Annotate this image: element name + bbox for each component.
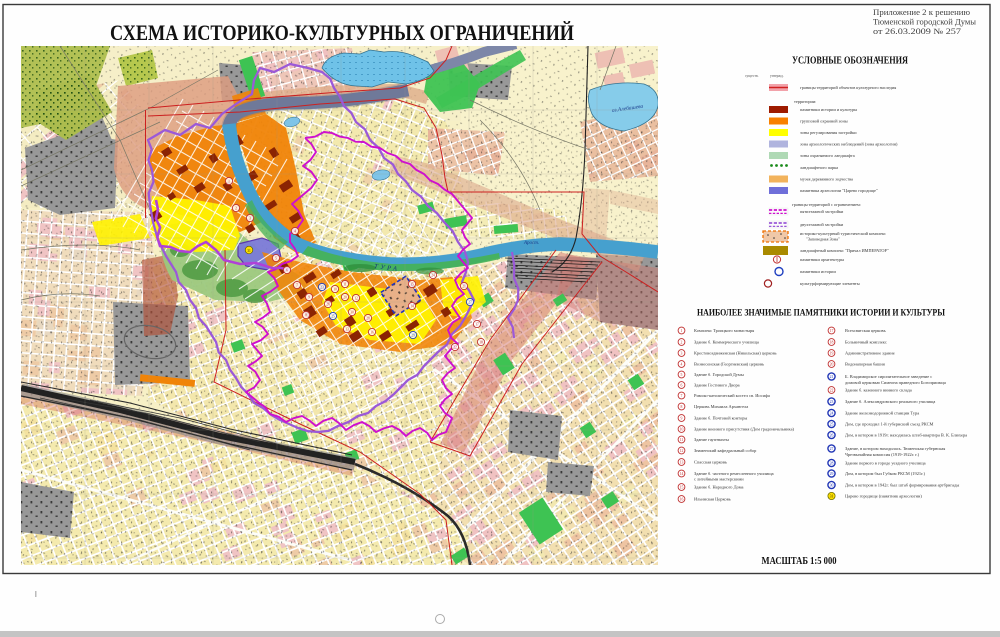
svg-text:7: 7 — [681, 394, 683, 398]
svg-text:11: 11 — [680, 438, 684, 442]
svg-text:3: 3 — [681, 352, 683, 356]
svg-text:существ.: существ. — [745, 74, 759, 78]
svg-text:1: 1 — [228, 179, 230, 183]
svg-text:30: 30 — [830, 484, 834, 488]
svg-text:9: 9 — [308, 295, 310, 299]
svg-text:12: 12 — [354, 296, 358, 300]
svg-text:Больничный комплекс: Больничный комплекс — [845, 340, 887, 345]
svg-text:26: 26 — [830, 434, 834, 438]
svg-text:31: 31 — [830, 495, 834, 499]
svg-text:ландшафтный комплекс "Причал И: ландшафтный комплекс "Причал ИМПЕРАТОР" — [800, 248, 889, 253]
svg-text:Здание Гостиного Двора: Здание Гостиного Двора — [694, 383, 740, 388]
svg-text:Здание б. казенного винного ск: Здание б. казенного винного склада — [845, 388, 912, 393]
svg-text:15: 15 — [410, 282, 414, 286]
svg-text:28: 28 — [366, 316, 370, 320]
svg-text:3: 3 — [249, 216, 251, 220]
svg-text:30: 30 — [350, 310, 354, 314]
svg-text:Римско-католический костел св.: Римско-католический костел св. Иосифа — [694, 393, 770, 398]
svg-text:"Заповедная Зона": "Заповедная Зона" — [806, 237, 840, 242]
svg-text:двухэтажной застройки: двухэтажной застройки — [800, 222, 844, 227]
svg-text:14: 14 — [410, 304, 414, 308]
svg-text:памятники архитектуры: памятники архитектуры — [800, 257, 844, 262]
svg-text:границы территорий объектов ку: границы территорий объектов культурного … — [800, 85, 896, 90]
svg-text:историко-культурный туристичес: историко-культурный туристический компле… — [800, 231, 886, 236]
svg-text:15: 15 — [680, 486, 684, 490]
svg-text:домовой церковью Симеона праве: домовой церковью Симеона праведного Бого… — [845, 380, 946, 385]
svg-text:4: 4 — [294, 229, 296, 233]
svg-text:Здание б. Народного Дома: Здание б. Народного Дома — [694, 485, 743, 490]
svg-text:23: 23 — [830, 400, 834, 404]
svg-text:7: 7 — [296, 283, 298, 287]
svg-text:10: 10 — [333, 287, 337, 291]
svg-text:25: 25 — [830, 423, 834, 427]
svg-text:Ильинская Церковь: Ильинская Церковь — [694, 497, 731, 502]
svg-text:20: 20 — [830, 363, 834, 367]
svg-text:Здание б. Коммерческого училищ: Здание б. Коммерческого училища — [694, 340, 759, 345]
svg-text:11: 11 — [343, 282, 347, 286]
svg-text:Здание первого в городе уездно: Здание первого в городе уездного училища — [845, 461, 926, 466]
svg-text:13: 13 — [345, 327, 349, 331]
svg-text:6: 6 — [681, 384, 683, 388]
svg-text:Здание б. Почтовой конторы: Здание б. Почтовой конторы — [694, 416, 747, 421]
svg-text:22: 22 — [830, 389, 834, 393]
svg-text:границы территорий с ограничен: границы территорий с ограничением: — [792, 202, 861, 207]
svg-text:Комплекс Троицкого монастыря: Комплекс Троицкого монастыря — [694, 328, 754, 333]
svg-text:8: 8 — [681, 405, 683, 409]
svg-text:зоны регулирования застройки: зоны регулирования застройки — [800, 130, 857, 135]
svg-text:от 26.03.2009 № 257: от 26.03.2009 № 257 — [873, 27, 961, 36]
svg-text:ландшафтного парка: ландшафтного парка — [800, 165, 838, 170]
svg-text:культурформирующие элементы: культурформирующие элементы — [800, 281, 860, 286]
svg-text:10: 10 — [680, 428, 684, 432]
svg-text:21: 21 — [462, 284, 466, 288]
svg-text:5: 5 — [681, 373, 683, 377]
svg-text:29: 29 — [411, 333, 415, 337]
svg-text:Знаменский кафедральный собор: Знаменский кафедральный собор — [694, 448, 757, 453]
svg-text:18: 18 — [479, 340, 483, 344]
svg-text:12: 12 — [680, 449, 684, 453]
svg-text:Царево городище (памятник архе: Царево городище (памятник археологии) — [845, 494, 922, 499]
svg-text:Здание б. Александровского реа: Здание б. Александровского реального учи… — [845, 399, 935, 404]
svg-text:с литейными мастерскими: с литейными мастерскими — [694, 477, 744, 482]
svg-text:14: 14 — [680, 472, 684, 476]
svg-text:МАСШТАБ 1:5 000: МАСШТАБ 1:5 000 — [762, 556, 837, 567]
svg-text:6: 6 — [286, 268, 288, 272]
svg-text:29: 29 — [830, 472, 834, 476]
svg-text:13: 13 — [680, 461, 684, 465]
svg-text:Приложение 2 к решению: Приложение 2 к решению — [873, 8, 970, 17]
svg-text:памятники истории: памятники истории — [800, 269, 836, 274]
svg-text:Водонапорная башня: Водонапорная башня — [845, 362, 885, 367]
svg-text:25: 25 — [331, 314, 335, 318]
svg-text:16: 16 — [680, 498, 684, 502]
svg-text:Здание б. частного ремесленног: Здание б. частного ремесленного училища — [694, 471, 774, 476]
svg-text:2: 2 — [681, 341, 683, 345]
svg-text:Б. Владимирское сиропитательно: Б. Владимирское сиропитательное заведени… — [845, 374, 932, 379]
svg-text:утвержд.: утвержд. — [770, 74, 784, 78]
svg-text:2: 2 — [235, 206, 237, 210]
svg-text:20: 20 — [343, 295, 347, 299]
svg-text:19: 19 — [830, 352, 834, 356]
svg-text:22: 22 — [453, 345, 457, 349]
svg-text:26: 26 — [326, 302, 330, 306]
svg-text:территории:: территории: — [794, 99, 816, 104]
svg-text:зоны охраняемого ландшафта: зоны охраняемого ландшафта — [800, 153, 855, 158]
svg-text:памятники истории и культуры: памятники истории и культуры — [800, 107, 857, 112]
svg-text:28: 28 — [830, 462, 834, 466]
svg-text:Спасская церковь: Спасская церковь — [694, 460, 727, 465]
svg-text:памятника археологии "Царево г: памятника археологии "Царево городище" — [800, 188, 878, 193]
svg-text:Чрезвычайная комиссия (1919-19: Чрезвычайная комиссия (1919-1922г. г.) — [845, 452, 920, 457]
svg-text:Административное здание: Административное здание — [845, 351, 895, 356]
svg-text:зона археологических наблюдени: зона археологических наблюдений (зона ар… — [800, 142, 898, 147]
svg-text:Здание гауптвахты: Здание гауптвахты — [694, 437, 729, 442]
svg-text:Всехсвятская церковь: Всехсвятская церковь — [845, 328, 886, 333]
svg-text:Здание военного присутствия (: Здание военного присутствия (Дом градона… — [694, 427, 795, 432]
svg-text:5: 5 — [275, 256, 277, 260]
svg-text:Здание железнодорожной станции: Здание железнодорожной станции Тура — [845, 411, 919, 416]
svg-text:8: 8 — [305, 313, 307, 317]
svg-text:НАИБОЛЕЕ ЗНАЧИМЫЕ ПАМЯТНИКИ ИС: НАИБОЛЕЕ ЗНАЧИМЫЕ ПАМЯТНИКИ ИСТОРИИ И КУ… — [697, 309, 946, 319]
svg-text:пятиэтажной застройки: пятиэтажной застройки — [800, 209, 844, 214]
svg-text:1: 1 — [681, 329, 683, 333]
svg-text:17: 17 — [475, 322, 479, 326]
svg-text:31: 31 — [247, 249, 251, 253]
svg-text:СХЕМА ИСТОРИКО-КУЛЬТУРНЫХ ОГРА: СХЕМА ИСТОРИКО-КУЛЬТУРНЫХ ОГРАНИЧЕНИЙ — [110, 20, 574, 45]
svg-text:23: 23 — [320, 285, 324, 289]
svg-text:Тюменской городской Думы: Тюменской городской Думы — [873, 18, 977, 27]
svg-text:24: 24 — [431, 273, 435, 277]
svg-text:4: 4 — [681, 363, 683, 367]
svg-text:групповой охранной зоны: групповой охранной зоны — [800, 119, 848, 124]
svg-text:Крестовоздвиженская (Никольска: Крестовоздвиженская (Никольская) церковь — [694, 351, 777, 356]
svg-text:17: 17 — [830, 329, 834, 333]
svg-text:21: 21 — [830, 375, 834, 379]
svg-text:Здание б. Городской Думы: Здание б. Городской Думы — [694, 372, 744, 377]
svg-text:Арост.: Арост. — [523, 241, 539, 246]
svg-text:9: 9 — [681, 417, 683, 421]
svg-text:УСЛОВНЫЕ ОБОЗНАЧЕНИЯ: УСЛОВНЫЕ ОБОЗНАЧЕНИЯ — [792, 56, 909, 67]
svg-text:24: 24 — [830, 412, 834, 416]
svg-text:Церковь Михаила Архангела: Церковь Михаила Архангела — [694, 404, 748, 409]
svg-text:Вознесенская (Георгиевская) це: Вознесенская (Георгиевская) церковь — [694, 362, 764, 367]
svg-text:27: 27 — [830, 447, 834, 451]
svg-text:музея деревянного зодчества: музея деревянного зодчества — [800, 177, 853, 182]
svg-text:27: 27 — [468, 300, 472, 304]
svg-text:16: 16 — [370, 330, 374, 334]
svg-text:18: 18 — [830, 341, 834, 345]
